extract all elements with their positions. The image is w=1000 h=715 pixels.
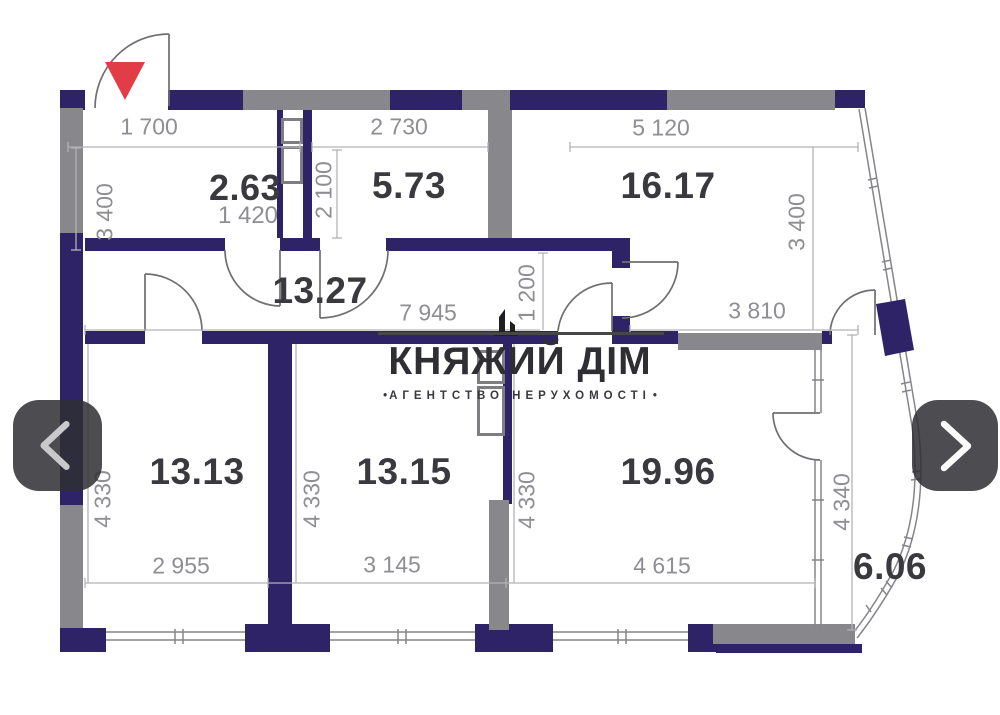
- entrance-marker-icon: [105, 62, 145, 100]
- room-area-263: 2.63: [209, 167, 281, 209]
- agency-logo: КНЯЖИЙ ДІМ •АГЕНТСТВО НЕРУХОМОСТІ•: [340, 300, 700, 402]
- chevron-left-icon: [13, 400, 102, 491]
- logo-title: КНЯЖИЙ ДІМ: [340, 340, 700, 384]
- dim-5120: 5 120: [632, 115, 690, 142]
- dim-3400-left: 3 400: [92, 183, 119, 241]
- logo-subtitle-text: АГЕНТСТВО НЕРУХОМОСТІ: [389, 390, 651, 402]
- logo-bullet: •: [383, 390, 387, 402]
- chevron-right-icon: [912, 400, 998, 491]
- logo-subtitle: •АГЕНТСТВО НЕРУХОМОСТІ•: [340, 390, 700, 402]
- previous-image-button[interactable]: [13, 400, 102, 491]
- dim-2955: 2 955: [152, 553, 210, 580]
- dim-4330-mid: 4 330: [299, 470, 326, 528]
- dim-2100: 2 100: [311, 161, 338, 219]
- dim-4340: 4 340: [829, 473, 856, 531]
- wall-segment: [876, 299, 914, 356]
- dim-3145: 3 145: [363, 552, 421, 579]
- listing-image-viewer: 1 700 2 730 5 120 3 400 3 400 2 100 1 42…: [0, 0, 1000, 715]
- dim-4615: 4 615: [633, 553, 691, 580]
- room-area-573: 5.73: [372, 165, 446, 207]
- logo-bullet: •: [653, 390, 657, 402]
- room-area-606: 6.06: [853, 546, 927, 588]
- room-area-1617: 16.17: [620, 165, 715, 207]
- room-area-1315: 13.15: [356, 451, 451, 493]
- dim-3400-right: 3 400: [784, 193, 811, 251]
- room-area-1313: 13.13: [149, 451, 244, 493]
- dim-2730: 2 730: [370, 114, 428, 141]
- room-area-1996: 19.96: [620, 451, 715, 493]
- next-image-button[interactable]: [912, 400, 998, 491]
- dim-4330-mid2: 4 330: [514, 471, 541, 529]
- logo-rule: [378, 332, 664, 335]
- dim-1700: 1 700: [120, 114, 178, 141]
- dim-3810: 3 810: [728, 298, 786, 325]
